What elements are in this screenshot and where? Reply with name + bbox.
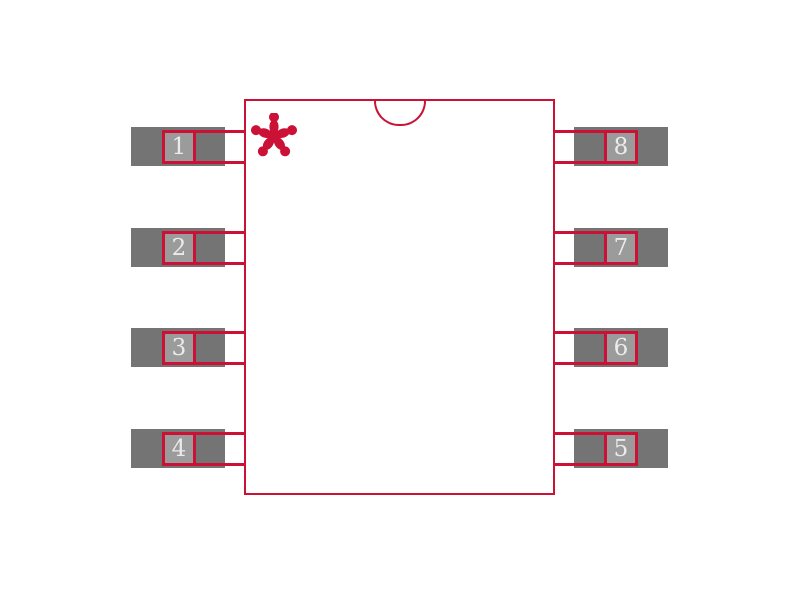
pin-8-number-box: 8 bbox=[604, 130, 638, 164]
pin-8-number: 8 bbox=[614, 136, 629, 159]
pin-7-number-box: 7 bbox=[604, 231, 638, 265]
pin-1-number: 1 bbox=[172, 136, 187, 159]
pin-7-number: 7 bbox=[614, 237, 629, 260]
pin-2-number: 2 bbox=[172, 237, 187, 260]
pin1-asterisk-icon bbox=[251, 113, 297, 159]
pin-6-number: 6 bbox=[614, 337, 629, 360]
pin-2-number-box: 2 bbox=[162, 231, 196, 265]
pin-2-leg bbox=[193, 231, 246, 265]
pin-3-number: 3 bbox=[172, 337, 187, 360]
pin-7-leg bbox=[553, 231, 606, 265]
pin-4-number-box: 4 bbox=[162, 432, 196, 466]
pin-5-leg bbox=[553, 432, 606, 466]
pin-5-number: 5 bbox=[614, 438, 629, 461]
pin-5-number-box: 5 bbox=[604, 432, 638, 466]
component-footprint-diagram: 1 2 3 4 8 7 bbox=[0, 0, 800, 596]
pin-4-number: 4 bbox=[172, 438, 187, 461]
pin-6-number-box: 6 bbox=[604, 331, 638, 365]
pin-8-leg bbox=[553, 130, 606, 164]
pin-3-leg bbox=[193, 331, 246, 365]
pin-1-leg bbox=[193, 130, 246, 164]
pin-3-number-box: 3 bbox=[162, 331, 196, 365]
pin-1-number-box: 1 bbox=[162, 130, 196, 164]
pin-4-leg bbox=[193, 432, 246, 466]
pin-6-leg bbox=[553, 331, 606, 365]
